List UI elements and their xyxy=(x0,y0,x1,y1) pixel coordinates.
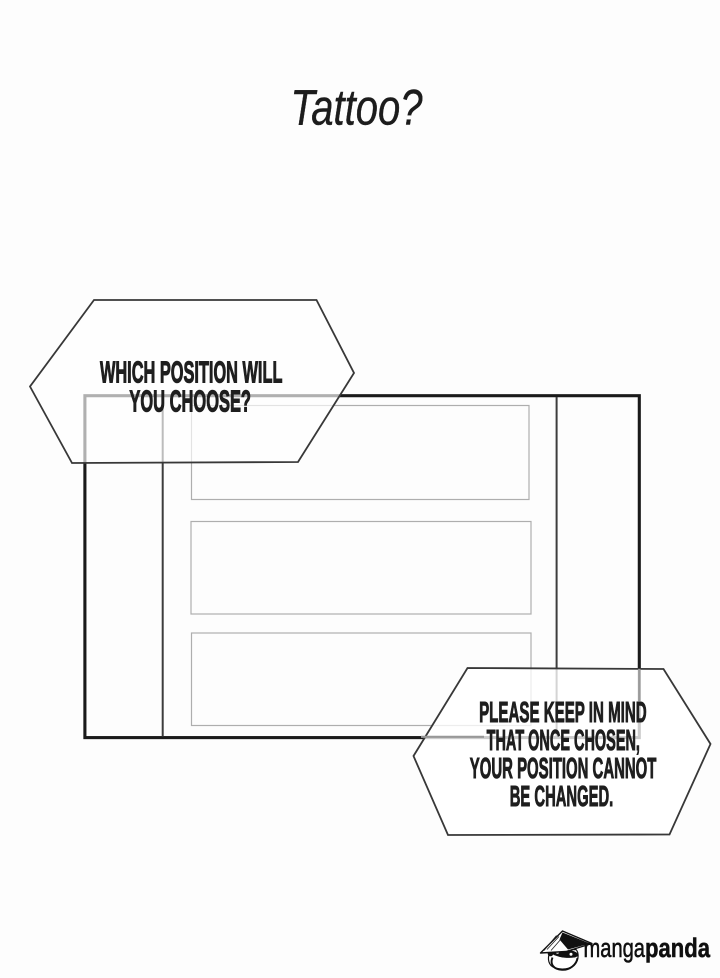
svg-text:Tattoo?: Tattoo? xyxy=(291,79,423,135)
svg-text:manga: manga xyxy=(584,933,646,963)
svg-text:BE CHANGED.: BE CHANGED. xyxy=(510,781,614,813)
svg-text:panda: panda xyxy=(645,933,710,963)
svg-text:YOU CHOOSE?: YOU CHOOSE? xyxy=(129,384,251,419)
